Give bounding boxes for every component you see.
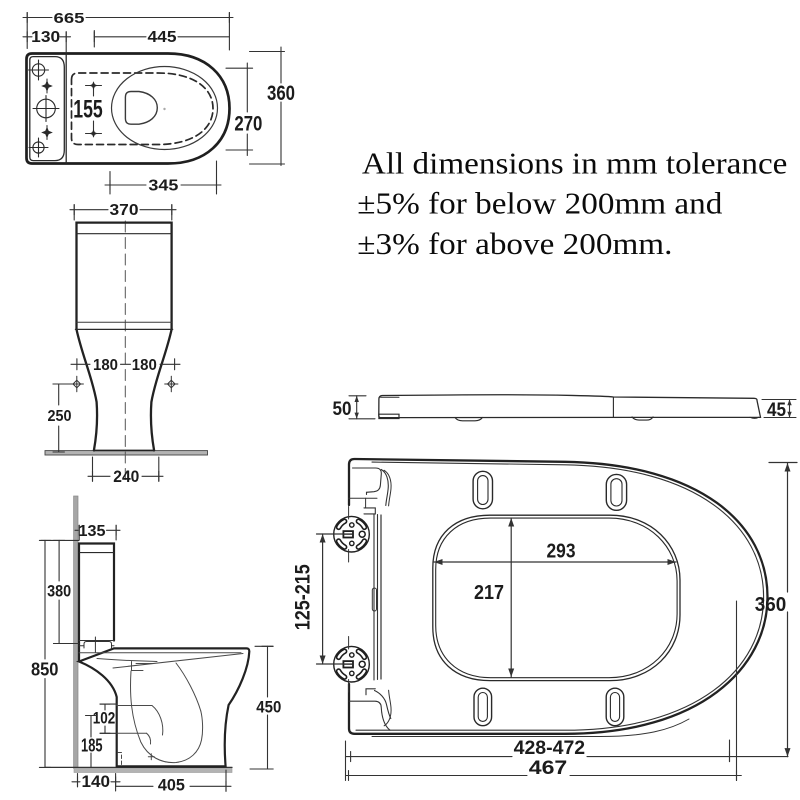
svg-text:405: 405 <box>158 775 185 794</box>
svg-text:360: 360 <box>755 594 787 616</box>
svg-text:293: 293 <box>547 541 576 563</box>
svg-text:450: 450 <box>256 697 281 716</box>
svg-text:155: 155 <box>73 96 103 124</box>
svg-text:345: 345 <box>148 178 178 195</box>
svg-text:380: 380 <box>47 582 71 601</box>
svg-text:850: 850 <box>31 659 59 679</box>
svg-text:±5% for below 200mm and: ±5% for below 200mm and <box>357 187 722 221</box>
svg-text:125-215: 125-215 <box>292 564 315 630</box>
svg-text:All dimensions in mm tolerance: All dimensions in mm tolerance <box>362 146 788 180</box>
svg-text:240: 240 <box>113 467 139 486</box>
svg-text:360: 360 <box>267 82 295 105</box>
svg-text:135: 135 <box>79 523 106 540</box>
svg-text:445: 445 <box>148 29 177 46</box>
svg-text:50: 50 <box>333 399 352 420</box>
svg-text:428-472: 428-472 <box>514 738 586 759</box>
svg-text:270: 270 <box>234 113 262 136</box>
svg-text:45: 45 <box>767 400 786 421</box>
svg-text:180: 180 <box>132 357 157 374</box>
svg-text:185: 185 <box>81 736 103 756</box>
svg-text:180: 180 <box>93 357 118 374</box>
svg-text:665: 665 <box>54 10 85 27</box>
svg-text:370: 370 <box>110 202 139 219</box>
svg-text:217: 217 <box>474 582 504 604</box>
svg-text:140: 140 <box>82 773 111 791</box>
svg-text:467: 467 <box>529 758 568 779</box>
svg-text:±3% for above 200mm.: ±3% for above 200mm. <box>357 227 672 261</box>
svg-text:102: 102 <box>93 709 116 728</box>
svg-text:250: 250 <box>48 408 72 425</box>
svg-text:130: 130 <box>31 29 60 46</box>
